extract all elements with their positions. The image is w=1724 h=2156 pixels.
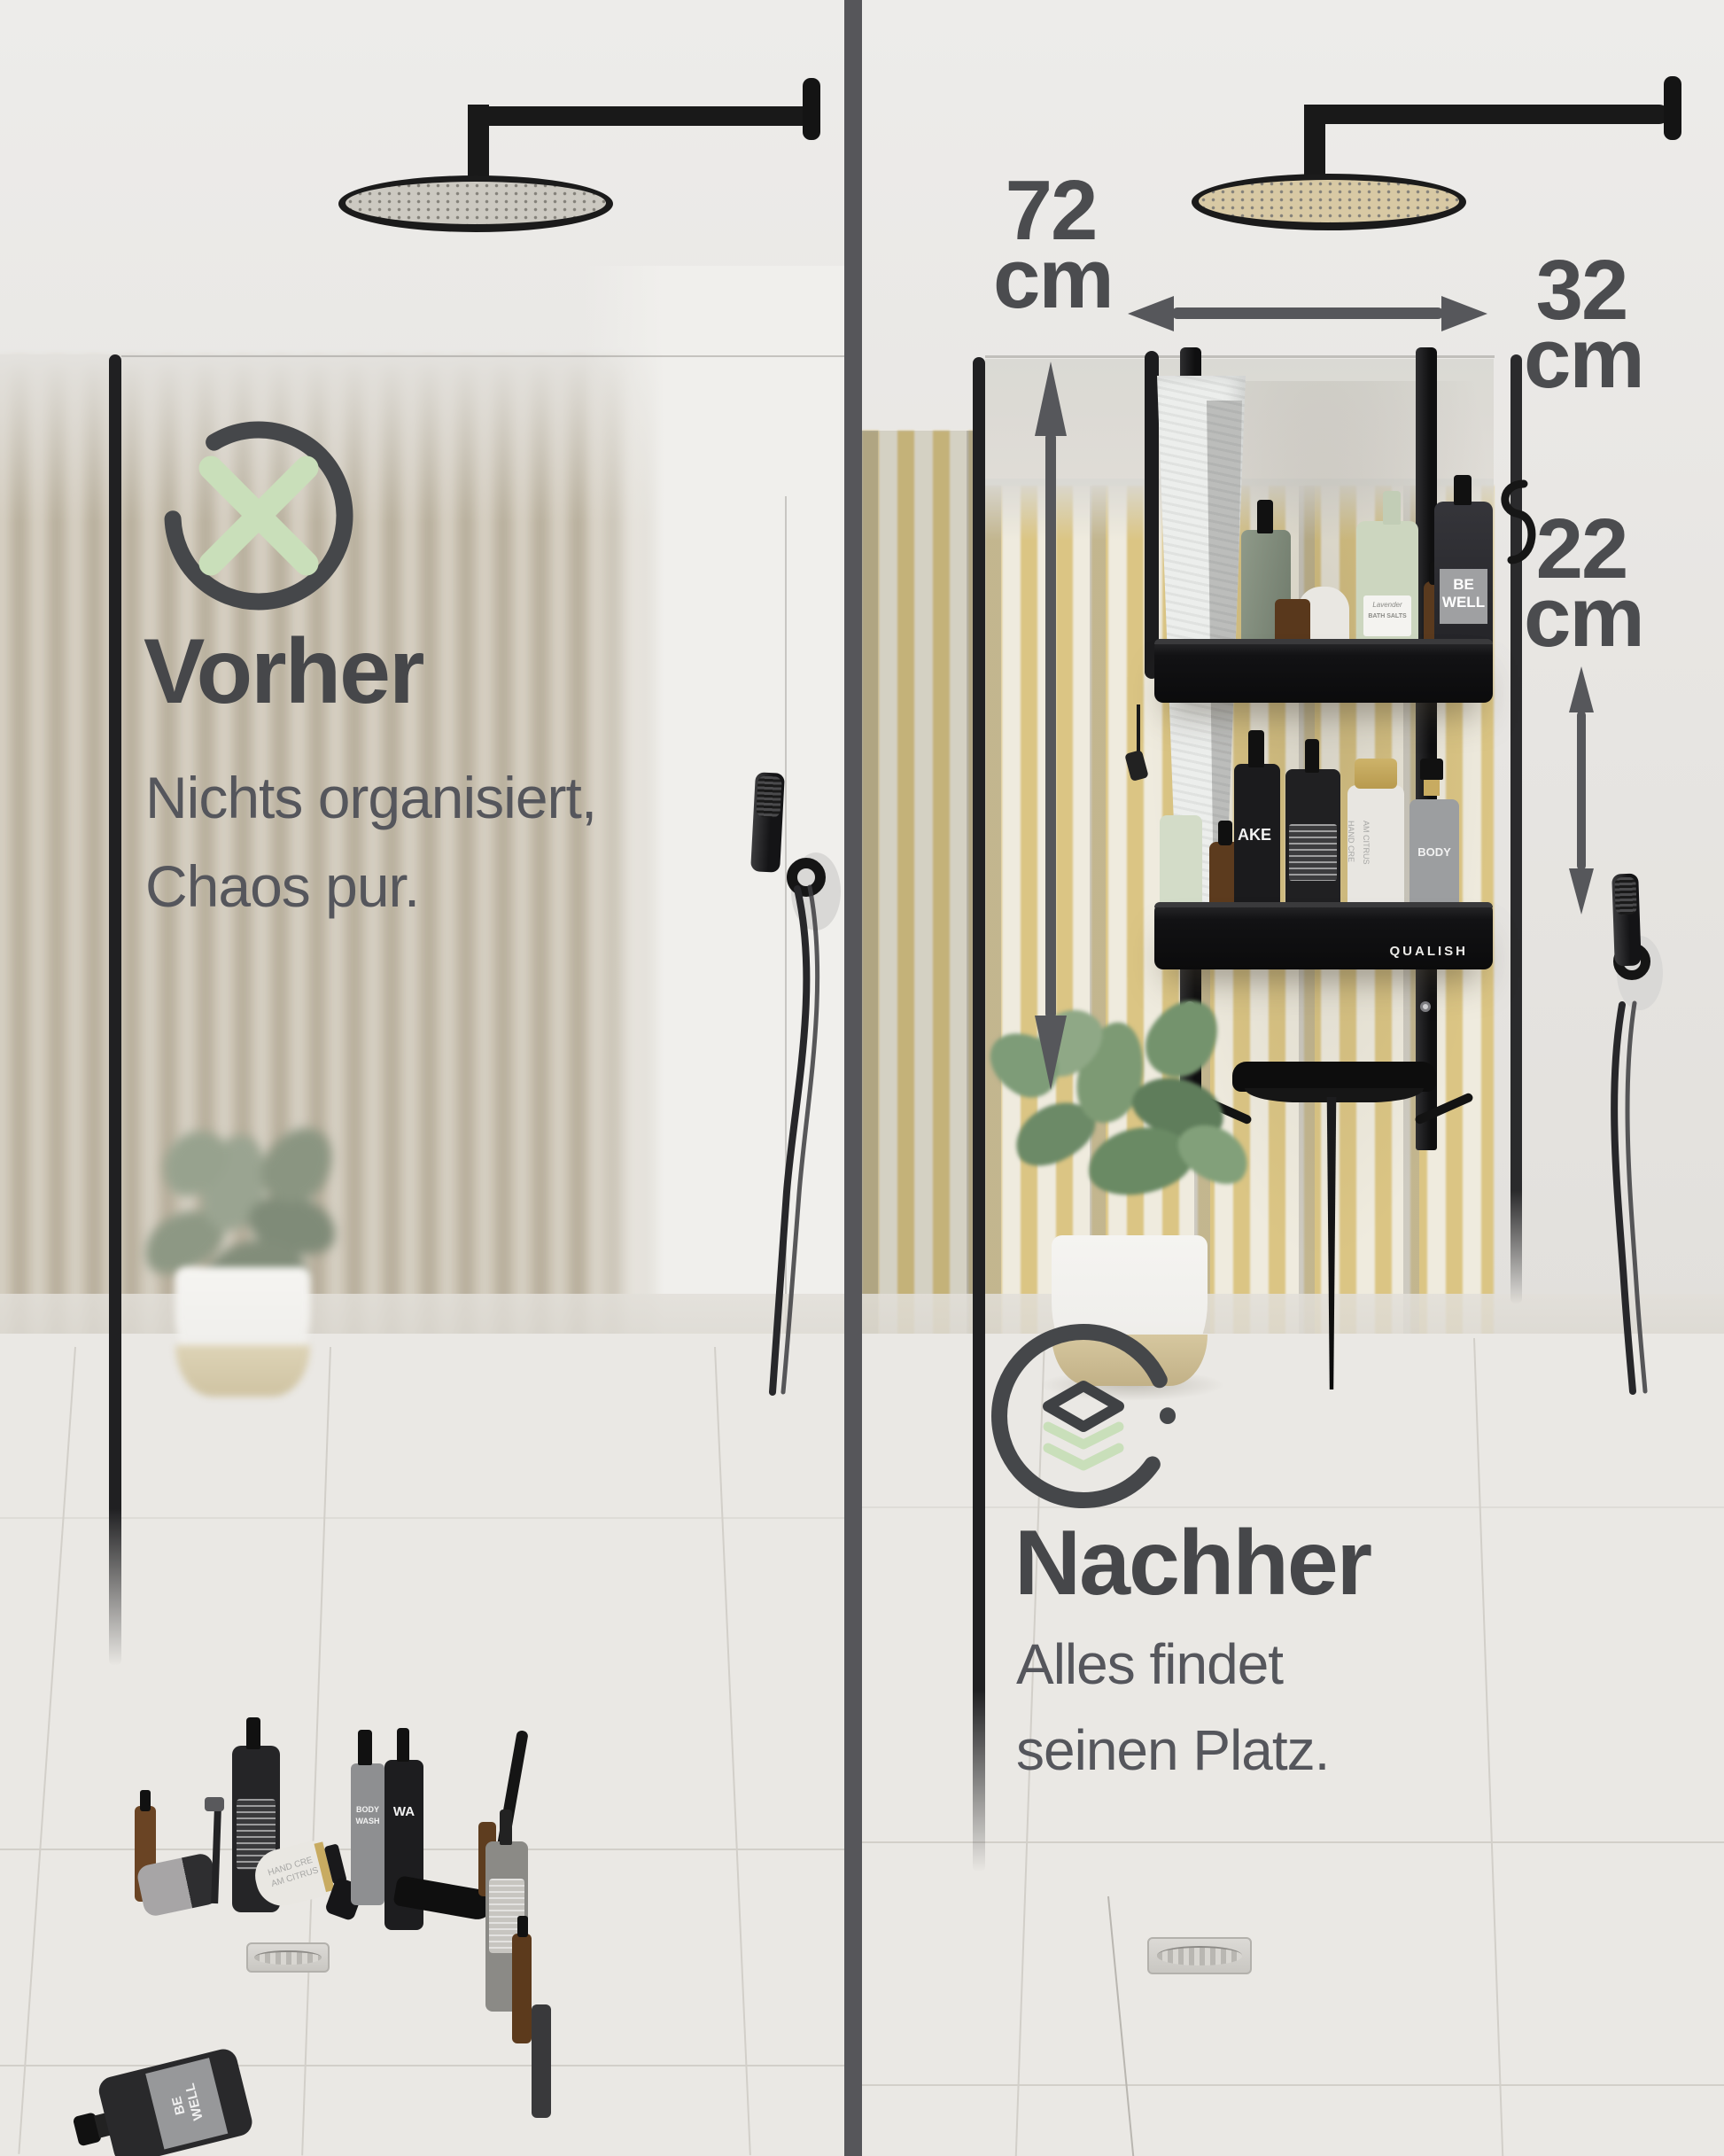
wake-pump [1248,730,1264,767]
shower-hose [1596,998,1702,1397]
razor-hook [1137,704,1140,756]
measurement-gap: 22 cm [1524,516,1639,652]
be-well-pump [1454,475,1472,505]
bottle-wake: AKE [1234,764,1280,922]
brand-label: QUALISH [1390,944,1469,959]
measurement-height: 72 cm [993,177,1108,314]
wake-label: AKE [1238,826,1271,844]
shower-arm [468,106,813,126]
shower-head-face [346,182,606,224]
dropper-cap-2 [1218,821,1232,845]
body-pump [1420,759,1443,780]
citrus-shelf-label: HAND CRE [1347,821,1355,862]
after-title: Nachher [1014,1517,1371,1609]
gap-arrow-head-down [1569,868,1594,915]
before-subtitle: Nichts organisiert, Chaos pur. [145,753,596,931]
body-wash-label: BODY [356,1805,379,1814]
floor-bottle-body-wash: BODY WASH [351,1763,384,1905]
width-arrow-head-right [1441,296,1487,331]
height-arrow-head-down [1035,1016,1067,1090]
after-subtitle: Alles findet seinen Platz. [1016,1622,1329,1794]
caddy-screw [1420,1001,1431,1012]
bottle-be-well: BE WELL [1434,502,1493,658]
rain-shower-head [1192,174,1466,230]
bath-salts-label: Lavender [1372,601,1402,609]
layers-badge-icon [990,1322,1177,1508]
wand-grip [1614,877,1636,915]
drain-grate [254,1950,322,1965]
grout-line [862,1841,1724,1843]
floor-bottle-dark [532,2004,551,2118]
panel-before: HAND CRE AM CITRUS BODY WASH WA [0,0,844,2156]
squeegee-blade [1232,1062,1436,1092]
shower-floor [0,1334,844,2156]
height-arrow [1045,432,1056,1019]
floor-bottle-amber-cap [140,1790,151,1811]
glass-edge-left [973,357,985,1872]
before-title: Vorher [144,626,423,718]
body-gold-neck [1424,778,1440,796]
hand-shower-wand [750,772,785,873]
measurement-width: 32 cm [1524,257,1639,393]
gap-arrow-head-up [1569,666,1594,712]
floor-body-wash-pump [358,1730,372,1765]
x-badge-icon [152,415,365,627]
floor-drain [246,1942,330,1973]
floor-drain [1147,1937,1252,1974]
before-after-composite: HAND CRE AM CITRUS BODY WASH WA [0,0,1724,2156]
bottle-citrus: HAND CRE AM CITRUS [1347,785,1404,922]
floor-wash-up-pump [397,1728,409,1762]
grout-line [0,1517,844,1519]
aesop-pump [1305,739,1319,773]
wand-grip [756,775,781,817]
bottle-aesop [1285,769,1340,922]
body-label: BODY [1409,845,1459,859]
width-arrow-head-left [1128,296,1174,331]
bottle-sage-pump [1257,500,1273,533]
drain-grate [1157,1946,1242,1965]
height-arrow-head-up [1035,362,1067,436]
floor-bottle-amber-tall [512,1934,532,2043]
shower-hose [742,882,844,1400]
shower-wall-flange [1664,76,1681,140]
hand-shower-wand [1611,874,1642,967]
shower-wall-flange [803,78,820,140]
glass-top-edge [121,355,844,357]
width-arrow [1172,307,1443,319]
be-well-label: BE [1453,576,1474,593]
floor-razor-head [205,1797,224,1811]
floor-bottle-black-pump [246,1717,260,1749]
plant-pot [175,1267,310,1397]
rain-shower-head [338,175,613,232]
grout-line [862,2084,1724,2086]
panel-after: Lavender BATH SALTS BE WELL AKE [862,0,1724,2156]
caddy-shelf-top [1154,639,1493,703]
glass-edge [109,354,121,1666]
caddy-strap-right [1416,347,1437,1150]
caddy-shelf-bottom: QUALISH [1154,902,1493,969]
gap-arrow [1577,711,1586,870]
bath-salts-pump [1383,491,1401,525]
citrus-gold-cap [1355,759,1397,789]
bottle-bath-salts: Lavender BATH SALTS [1356,521,1418,656]
floor-gray-pump-top [500,1810,512,1845]
towel-hook-bar [1145,351,1159,679]
shower-arm [1304,105,1669,124]
panel-divider [844,0,862,2156]
shower-head-face [1199,180,1459,222]
floor-amber-tall-cap [517,1916,528,1937]
